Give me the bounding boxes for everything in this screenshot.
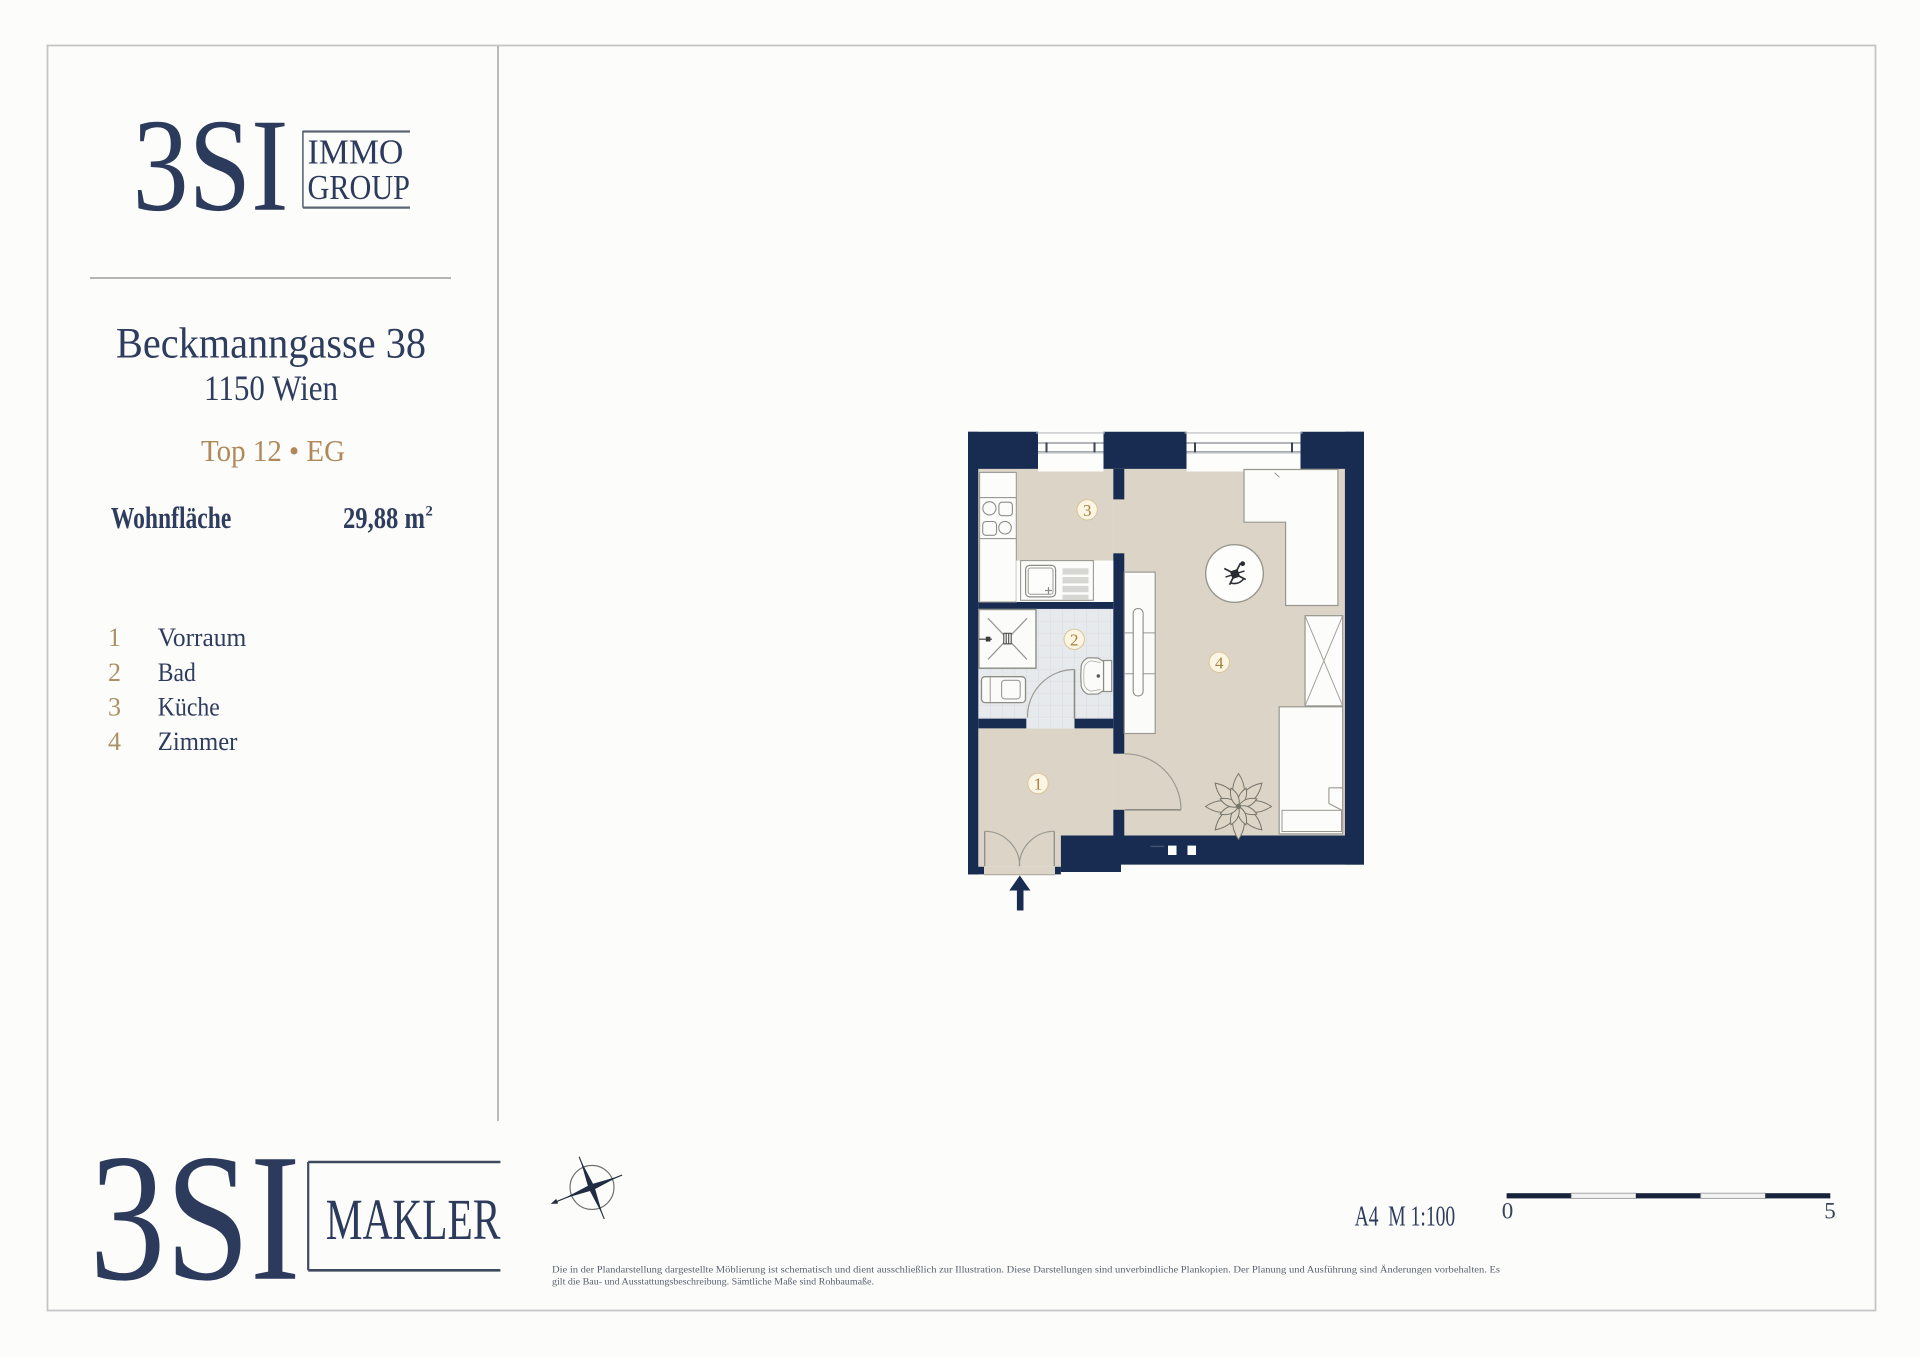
svg-text:5: 5 (1824, 1199, 1836, 1224)
svg-text:MAKLER: MAKLER (326, 1187, 501, 1252)
svg-text:IMMO: IMMO (308, 133, 404, 171)
svg-text:2: 2 (1070, 630, 1079, 649)
svg-text:Vorraum: Vorraum (158, 623, 247, 652)
svg-text:1: 1 (1034, 775, 1043, 794)
svg-text:3: 3 (1083, 501, 1092, 520)
svg-text:Bad: Bad (158, 658, 196, 687)
svg-text:Küche: Küche (158, 693, 220, 722)
svg-text:A4 M 1:100: A4 M 1:100 (1355, 1202, 1456, 1233)
svg-text:Top 12 • EG: Top 12 • EG (201, 433, 345, 468)
svg-text:3: 3 (108, 693, 121, 722)
svg-text:1150 Wien: 1150 Wien (204, 368, 338, 408)
svg-text:3SI: 3SI (90, 1117, 301, 1319)
svg-text:4: 4 (108, 727, 121, 756)
svg-text:29,88 m: 29,88 m (343, 500, 425, 535)
svg-text:gilt die Bau- und Ausstattungs: gilt die Bau- und Ausstattungsbeschreibu… (552, 1277, 874, 1287)
svg-text:2: 2 (108, 658, 121, 687)
svg-text:Die in der Plandarstellung dar: Die in der Plandarstellung dargestellte … (552, 1265, 1500, 1275)
svg-text:3SI: 3SI (133, 91, 289, 239)
svg-text:1: 1 (108, 623, 121, 652)
svg-text:4: 4 (1215, 653, 1224, 672)
svg-text:Wohnfläche: Wohnfläche (111, 500, 231, 535)
svg-text:2: 2 (426, 504, 433, 520)
svg-text:GROUP: GROUP (308, 169, 411, 207)
svg-text:0: 0 (1502, 1199, 1514, 1224)
svg-text:Zimmer: Zimmer (158, 727, 238, 756)
svg-text:Beckmanngasse 38: Beckmanngasse 38 (116, 321, 426, 368)
